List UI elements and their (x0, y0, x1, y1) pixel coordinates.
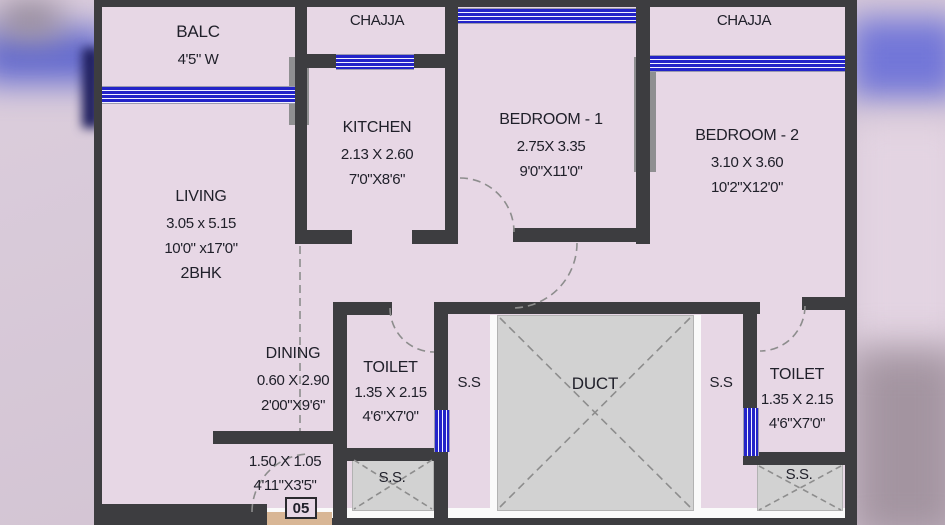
background-smudge (852, 350, 945, 525)
kitchen-dim-meters: 2.13 X 2.60 (297, 142, 457, 167)
wall-kitchen-bottom-left (295, 230, 352, 244)
wall-entrance-passage-top (213, 431, 340, 444)
wall-kitchen-sill-right (414, 54, 446, 68)
duct-gap-right (694, 315, 701, 511)
duct-label: DUCT (545, 370, 645, 399)
toilet-left-dim-feet: 4'6"X7'0" (330, 405, 451, 429)
toilet-left-name: TOILET (330, 355, 451, 381)
window-bedroom2 (650, 55, 845, 72)
toilet-right-dim-meters: 1.35 X 2.15 (737, 388, 857, 412)
kitchen-label: KITCHEN 2.13 X 2.60 7'0"X8'6" (297, 115, 457, 192)
service-slab-bottom-left-label: S.S. (362, 465, 422, 490)
living-dim-meters: 3.05 x 5.15 (121, 211, 281, 236)
duct-area (497, 315, 694, 511)
unit-number-badge: 05 (285, 497, 317, 519)
bedroom1-dim-feet: 9'0"X11'0" (471, 159, 631, 184)
bedroom2-name: BEDROOM - 2 (667, 123, 827, 150)
wall-living-bottom (94, 504, 267, 518)
entrance-label: 1.50 X 1.05 4'11"X3'5" (215, 450, 355, 498)
wall-toilet-right-top (802, 297, 845, 310)
window-kitchen (336, 54, 414, 70)
service-slab-bottom-right-name: S.S. (769, 462, 829, 487)
service-slab-right-name: S.S (696, 370, 746, 395)
toilet-right-label: TOILET 1.35 X 2.15 4'6"X7'0" (737, 362, 857, 436)
service-slab-left-label: S.S (444, 370, 494, 395)
wall-bedroom1-bottom (513, 228, 650, 242)
duct-name: DUCT (545, 370, 645, 399)
balcony-width: 4'5" W (118, 47, 278, 72)
bedroom1-name: BEDROOM - 1 (471, 107, 631, 134)
window-bedroom1 (458, 8, 636, 24)
bedroom2-dim-feet: 10'2"X12'0" (667, 175, 827, 200)
bedroom1-label: BEDROOM - 1 2.75X 3.35 9'0"X11'0" (471, 107, 631, 184)
bottom-band (94, 518, 857, 525)
balcony-label: BALC 4'5" W (118, 18, 278, 72)
wall-kitchen-bottom-right (412, 230, 458, 244)
chajja-right-label: CHAJJA (674, 8, 814, 33)
toilet-left-dim-meters: 1.35 X 2.15 (330, 381, 451, 405)
toilet-right-dim-feet: 4'6"X7'0" (737, 412, 857, 436)
living-dim-feet: 10'0" x17'0" (121, 236, 281, 261)
toilet-left-label: TOILET 1.35 X 2.15 4'6"X7'0" (330, 355, 451, 429)
wall-kitchen-sill-left (307, 54, 336, 68)
entrance-dim-feet: 4'11"X3'5" (215, 474, 355, 498)
wall-top (94, 0, 857, 7)
wall-toilet-left-top (333, 302, 392, 315)
living-label: LIVING 3.05 x 5.15 10'0" x17'0" 2BHK (121, 184, 281, 288)
chajja-left-label: CHAJJA (307, 8, 447, 33)
balcony-name: BALC (118, 18, 278, 47)
bedroom2-dim-meters: 3.10 X 3.60 (667, 150, 827, 175)
service-slab-bottom-left-name: S.S. (362, 465, 422, 490)
bedroom2-label: BEDROOM - 2 3.10 X 3.60 10'2"X12'0" (667, 123, 827, 200)
unit-number: 05 (293, 500, 310, 517)
wall-duct-top (434, 302, 760, 314)
floor-plan-view: BALC 4'5" W CHAJJA CHAJJA KITCHEN 2.13 X… (0, 0, 945, 525)
entrance-dim-meters: 1.50 X 1.05 (215, 450, 355, 474)
window-balcony (102, 86, 295, 104)
background-smudge (852, 120, 945, 350)
living-unit-type: 2BHK (121, 261, 281, 288)
service-slab-right-label: S.S (696, 370, 746, 395)
toilet-right-name: TOILET (737, 362, 857, 388)
kitchen-name: KITCHEN (297, 115, 457, 142)
living-name: LIVING (121, 184, 281, 211)
wall-bedroom1-bedroom2 (636, 0, 650, 244)
service-slab-left-name: S.S (444, 370, 494, 395)
wall-right (845, 0, 857, 525)
chajja-right-name: CHAJJA (674, 8, 814, 33)
background-smudge (850, 18, 945, 98)
background-smudge (0, 0, 60, 40)
chajja-left-name: CHAJJA (307, 8, 447, 33)
kitchen-dim-feet: 7'0"X8'6" (297, 167, 457, 192)
duct-gap-left (490, 315, 497, 511)
wall-left (94, 0, 102, 525)
bedroom1-dim-meters: 2.75X 3.35 (471, 134, 631, 159)
service-slab-bottom-right-label: S.S. (769, 462, 829, 487)
